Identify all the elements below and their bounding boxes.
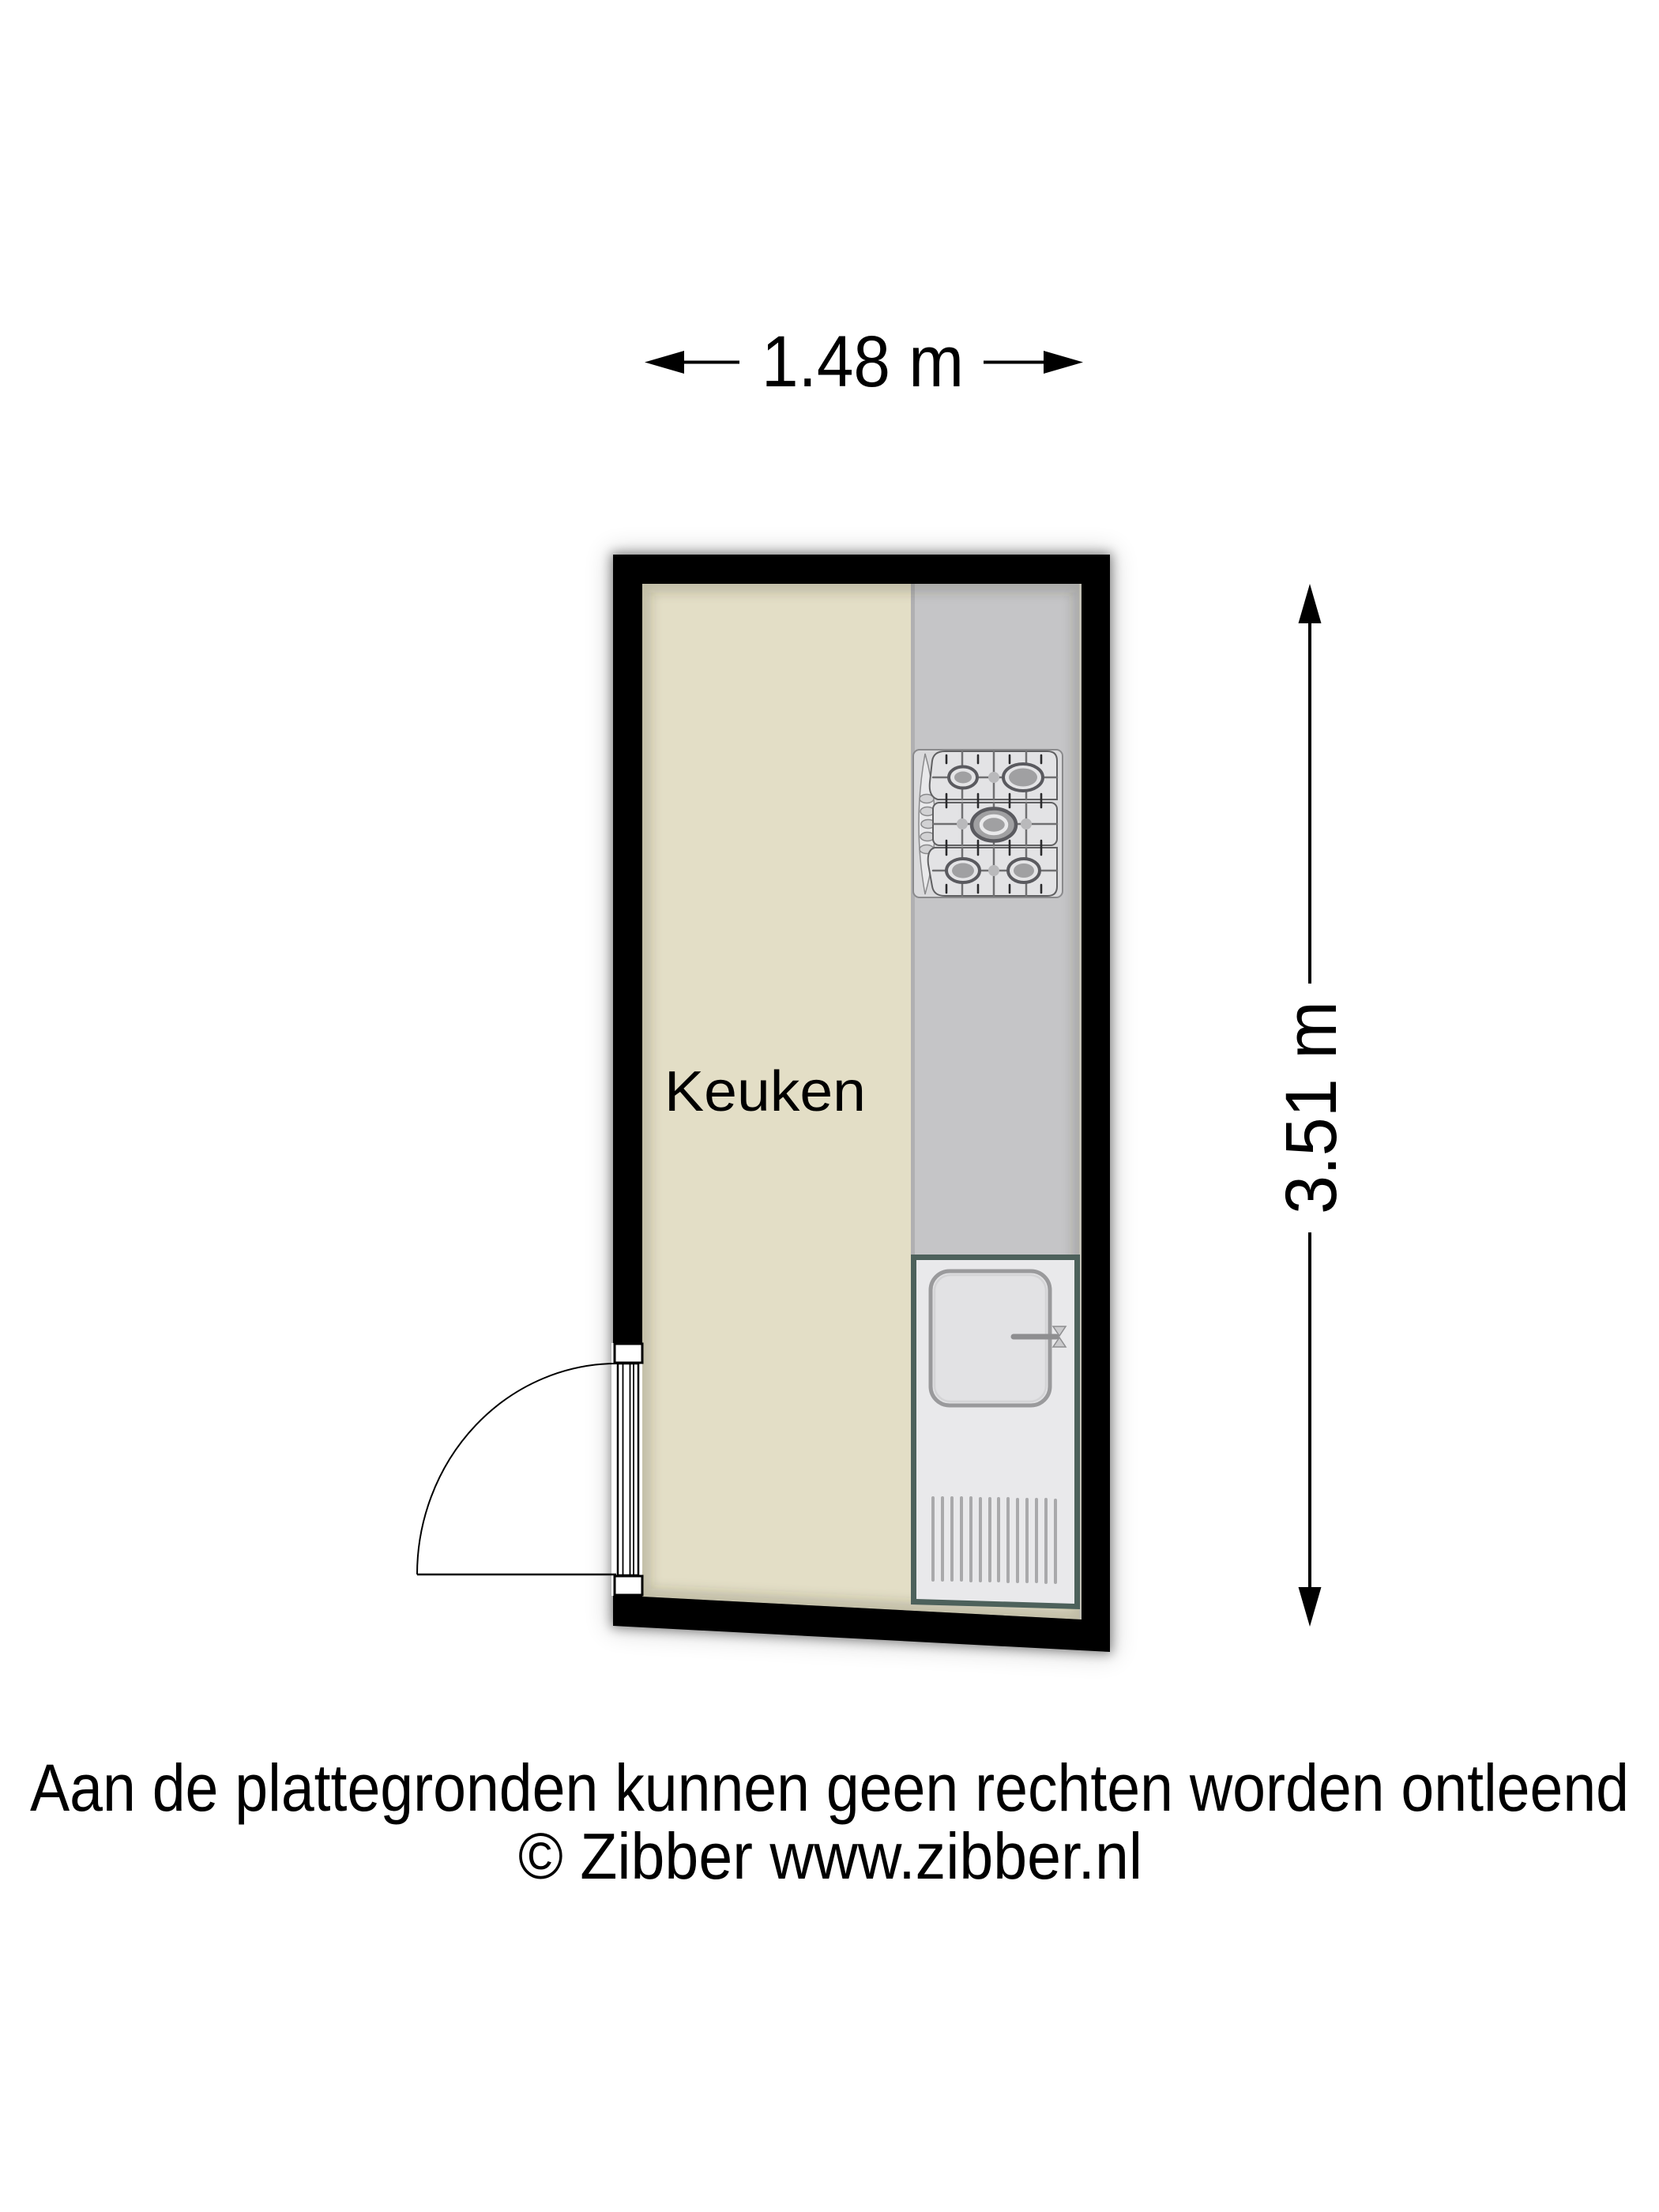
svg-text:3.51 m: 3.51 m bbox=[1271, 1001, 1352, 1214]
svg-text:Keuken: Keuken bbox=[664, 1060, 866, 1123]
svg-text:Aan de plattegronden kunnen ge: Aan de plattegronden kunnen geen rechten… bbox=[30, 1751, 1629, 1825]
svg-text:© Zibber www.zibber.nl: © Zibber www.zibber.nl bbox=[518, 1819, 1142, 1893]
svg-text:1.48 m: 1.48 m bbox=[762, 322, 964, 402]
